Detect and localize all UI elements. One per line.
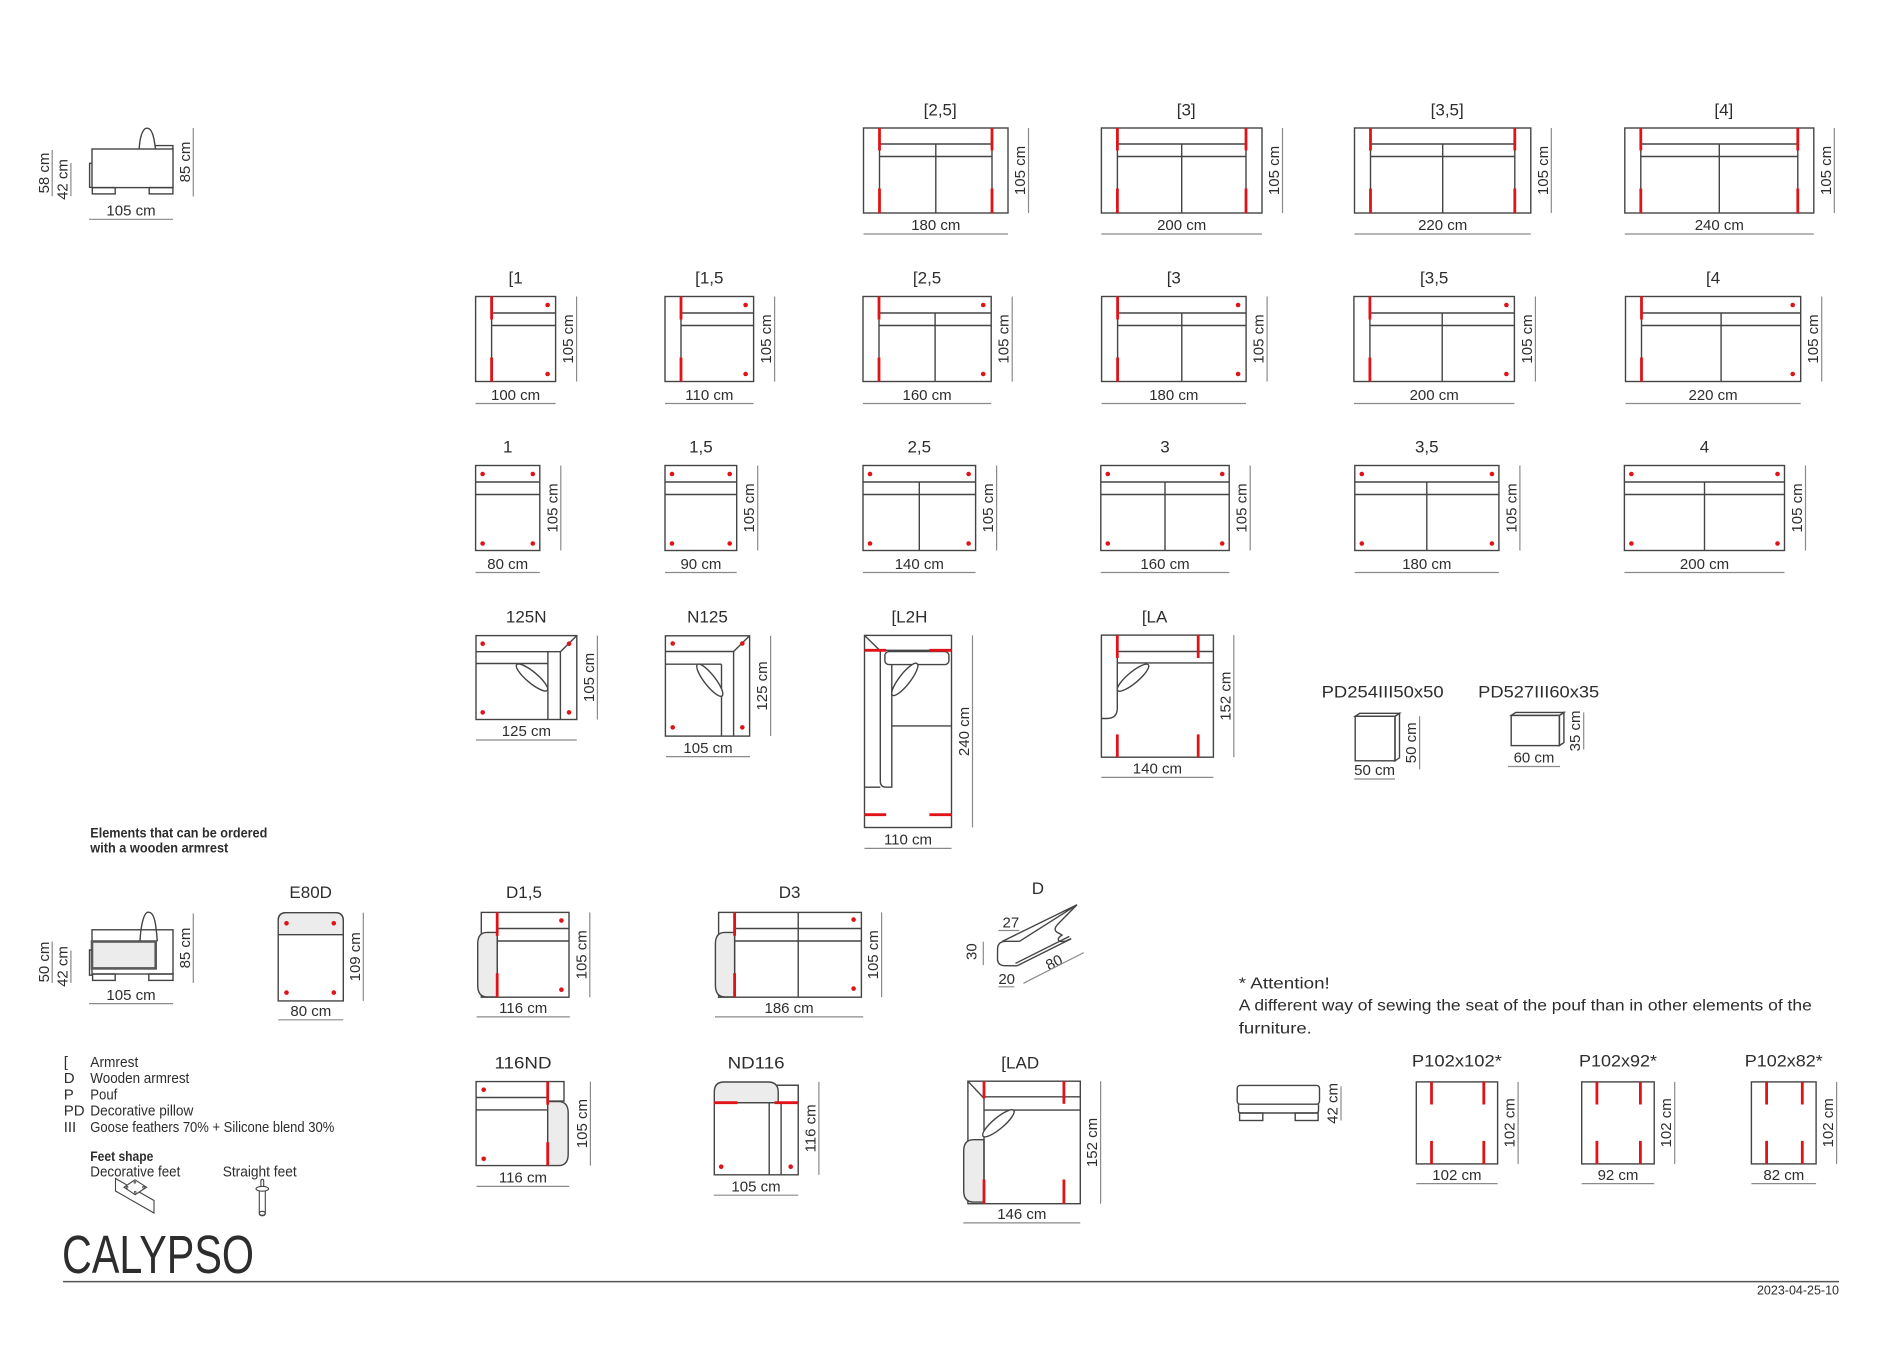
svg-text:90 cm: 90 cm (680, 556, 721, 573)
svg-text:102 cm: 102 cm (1820, 1098, 1837, 1147)
svg-text:105 cm: 105 cm (1266, 146, 1283, 195)
svg-text:with a wooden armrest: with a wooden armrest (89, 840, 228, 856)
svg-text:105 cm: 105 cm (1789, 483, 1806, 532)
svg-text:200 cm: 200 cm (1410, 387, 1459, 404)
svg-text:220 cm: 220 cm (1418, 217, 1467, 234)
svg-text:Straight feet: Straight feet (223, 1164, 298, 1181)
svg-text:105 cm: 105 cm (106, 203, 155, 220)
svg-text:D3: D3 (779, 883, 801, 902)
svg-text:116 cm: 116 cm (499, 1000, 547, 1017)
svg-text:Decorative feet: Decorative feet (90, 1164, 181, 1181)
svg-text:105 cm: 105 cm (1503, 483, 1520, 532)
svg-text:30: 30 (964, 943, 981, 960)
svg-text:125N: 125N (506, 608, 547, 627)
svg-text:80 cm: 80 cm (290, 1003, 331, 1020)
svg-text:82 cm: 82 cm (1763, 1167, 1804, 1184)
svg-text:140 cm: 140 cm (895, 556, 944, 573)
svg-text:116ND: 116ND (495, 1053, 552, 1072)
svg-text:3,5: 3,5 (1415, 438, 1439, 457)
svg-text:160 cm: 160 cm (902, 387, 951, 404)
svg-text:[1: [1 (509, 269, 523, 288)
svg-text:105 cm: 105 cm (573, 930, 590, 979)
svg-text:Wooden armrest: Wooden armrest (90, 1070, 190, 1087)
svg-text:[1,5: [1,5 (695, 269, 723, 288)
svg-text:105 cm: 105 cm (865, 930, 882, 979)
svg-text:CALYPSO: CALYPSO (62, 1225, 254, 1285)
svg-text:[3: [3 (1167, 269, 1181, 288)
svg-text:200 cm: 200 cm (1680, 556, 1729, 573)
svg-text:220 cm: 220 cm (1688, 387, 1737, 404)
svg-text:105 cm: 105 cm (741, 483, 758, 532)
svg-text:Elements that can be ordered: Elements that can be ordered (90, 824, 267, 840)
svg-text:PD254III50x50: PD254III50x50 (1322, 682, 1444, 701)
svg-text:2023-04-25-10: 2023-04-25-10 (1757, 1284, 1839, 1298)
svg-text:50 cm: 50 cm (1403, 722, 1420, 763)
svg-text:P102x92*: P102x92* (1579, 1052, 1657, 1071)
svg-text:[LAD: [LAD (1001, 1054, 1039, 1073)
svg-text:110 cm: 110 cm (884, 832, 932, 849)
svg-text:116 cm: 116 cm (802, 1104, 819, 1152)
svg-text:80 cm: 80 cm (487, 556, 528, 573)
svg-text:Decorative pillow: Decorative pillow (90, 1103, 193, 1120)
svg-text:180 cm: 180 cm (911, 217, 960, 234)
svg-text:92 cm: 92 cm (1598, 1167, 1639, 1184)
svg-text:Goose feathers 70% + Silicone: Goose feathers 70% + Silicone blend 30% (90, 1119, 334, 1136)
svg-text:3: 3 (1160, 438, 1169, 457)
svg-text:furniture.: furniture. (1239, 1020, 1312, 1037)
svg-text:240 cm: 240 cm (956, 707, 973, 756)
svg-text:180 cm: 180 cm (1402, 556, 1451, 573)
svg-text:125 cm: 125 cm (754, 661, 771, 710)
svg-text:[4]: [4] (1714, 101, 1733, 120)
svg-text:85 cm: 85 cm (177, 142, 194, 183)
svg-text:152 cm: 152 cm (1084, 1118, 1101, 1167)
svg-text:D: D (1032, 879, 1044, 898)
svg-text:152 cm: 152 cm (1217, 672, 1234, 721)
svg-text:20: 20 (998, 971, 1015, 988)
svg-text:105 cm: 105 cm (1805, 314, 1822, 363)
svg-text:* Attention!: * Attention! (1239, 976, 1330, 993)
svg-text:[2,5]: [2,5] (924, 101, 957, 120)
svg-text:P102x82*: P102x82* (1745, 1052, 1823, 1071)
svg-text:105 cm: 105 cm (980, 483, 997, 532)
svg-text:105 cm: 105 cm (574, 1099, 591, 1148)
svg-text:160 cm: 160 cm (1140, 556, 1189, 573)
svg-text:[L2H: [L2H (891, 608, 927, 627)
svg-text:125 cm: 125 cm (502, 723, 551, 740)
svg-text:42 cm: 42 cm (1325, 1083, 1342, 1124)
svg-text:1,5: 1,5 (689, 438, 713, 457)
svg-text:35 cm: 35 cm (1567, 710, 1584, 751)
svg-text:Armrest: Armrest (90, 1054, 139, 1071)
svg-text:[LA: [LA (1142, 608, 1168, 627)
svg-text:[2,5: [2,5 (913, 269, 941, 288)
svg-text:180 cm: 180 cm (1149, 387, 1198, 404)
svg-text:105 cm: 105 cm (996, 314, 1013, 363)
svg-text:1: 1 (503, 438, 512, 457)
svg-text:240 cm: 240 cm (1695, 217, 1744, 234)
svg-text:110 cm: 110 cm (685, 387, 733, 404)
svg-text:PD527III60x35: PD527III60x35 (1478, 682, 1599, 701)
svg-text:D: D (64, 1070, 75, 1087)
svg-text:140 cm: 140 cm (1133, 761, 1182, 778)
svg-text:Feet shape: Feet shape (90, 1148, 153, 1164)
svg-text:186 cm: 186 cm (764, 1000, 813, 1017)
svg-text:105 cm: 105 cm (683, 740, 732, 757)
svg-text:27: 27 (1003, 915, 1020, 932)
svg-text:E80D: E80D (289, 883, 332, 902)
svg-text:2,5: 2,5 (907, 438, 931, 457)
svg-text:42 cm: 42 cm (55, 946, 72, 987)
svg-text:Pouf: Pouf (90, 1086, 118, 1103)
svg-text:105 cm: 105 cm (1535, 146, 1552, 195)
svg-text:105 cm: 105 cm (1818, 146, 1835, 195)
svg-text:III: III (64, 1119, 77, 1136)
svg-text:200 cm: 200 cm (1157, 217, 1206, 234)
svg-text:146 cm: 146 cm (997, 1206, 1046, 1223)
svg-text:105 cm: 105 cm (731, 1179, 780, 1196)
svg-text:102 cm: 102 cm (1502, 1098, 1519, 1147)
svg-text:[4: [4 (1706, 269, 1720, 288)
svg-text:109 cm: 109 cm (347, 932, 364, 981)
svg-text:4: 4 (1700, 438, 1709, 457)
svg-text:105 cm: 105 cm (1012, 146, 1029, 195)
svg-text:105 cm: 105 cm (560, 314, 577, 363)
svg-text:58 cm: 58 cm (36, 153, 53, 194)
svg-text:105 cm: 105 cm (1519, 314, 1536, 363)
svg-text:42 cm: 42 cm (55, 159, 72, 200)
svg-text:102 cm: 102 cm (1432, 1167, 1481, 1184)
svg-text:116 cm: 116 cm (499, 1170, 547, 1187)
svg-text:P102x102*: P102x102* (1412, 1052, 1502, 1071)
svg-text:[3,5: [3,5 (1420, 269, 1448, 288)
svg-text:105 cm: 105 cm (581, 653, 598, 702)
svg-text:PD: PD (64, 1103, 85, 1120)
svg-text:N125: N125 (687, 608, 728, 627)
svg-text:P: P (64, 1086, 74, 1103)
svg-text:50 cm: 50 cm (1354, 762, 1395, 779)
svg-text:100 cm: 100 cm (491, 387, 540, 404)
svg-text:85 cm: 85 cm (177, 928, 194, 969)
svg-text:D1,5: D1,5 (506, 883, 542, 902)
svg-text:105 cm: 105 cm (106, 987, 155, 1004)
svg-text:ND116: ND116 (728, 1053, 785, 1072)
svg-text:50 cm: 50 cm (36, 942, 53, 983)
svg-text:[3]: [3] (1177, 101, 1196, 120)
svg-text:105 cm: 105 cm (1234, 483, 1251, 532)
svg-text:105 cm: 105 cm (758, 314, 775, 363)
svg-text:[3,5]: [3,5] (1431, 101, 1464, 120)
svg-text:60 cm: 60 cm (1514, 750, 1555, 767)
svg-text:105 cm: 105 cm (544, 483, 561, 532)
svg-text:102 cm: 102 cm (1658, 1098, 1675, 1147)
svg-text:A different way of sewing the: A different way of sewing the seat of th… (1239, 997, 1812, 1014)
svg-text:105 cm: 105 cm (1251, 314, 1268, 363)
